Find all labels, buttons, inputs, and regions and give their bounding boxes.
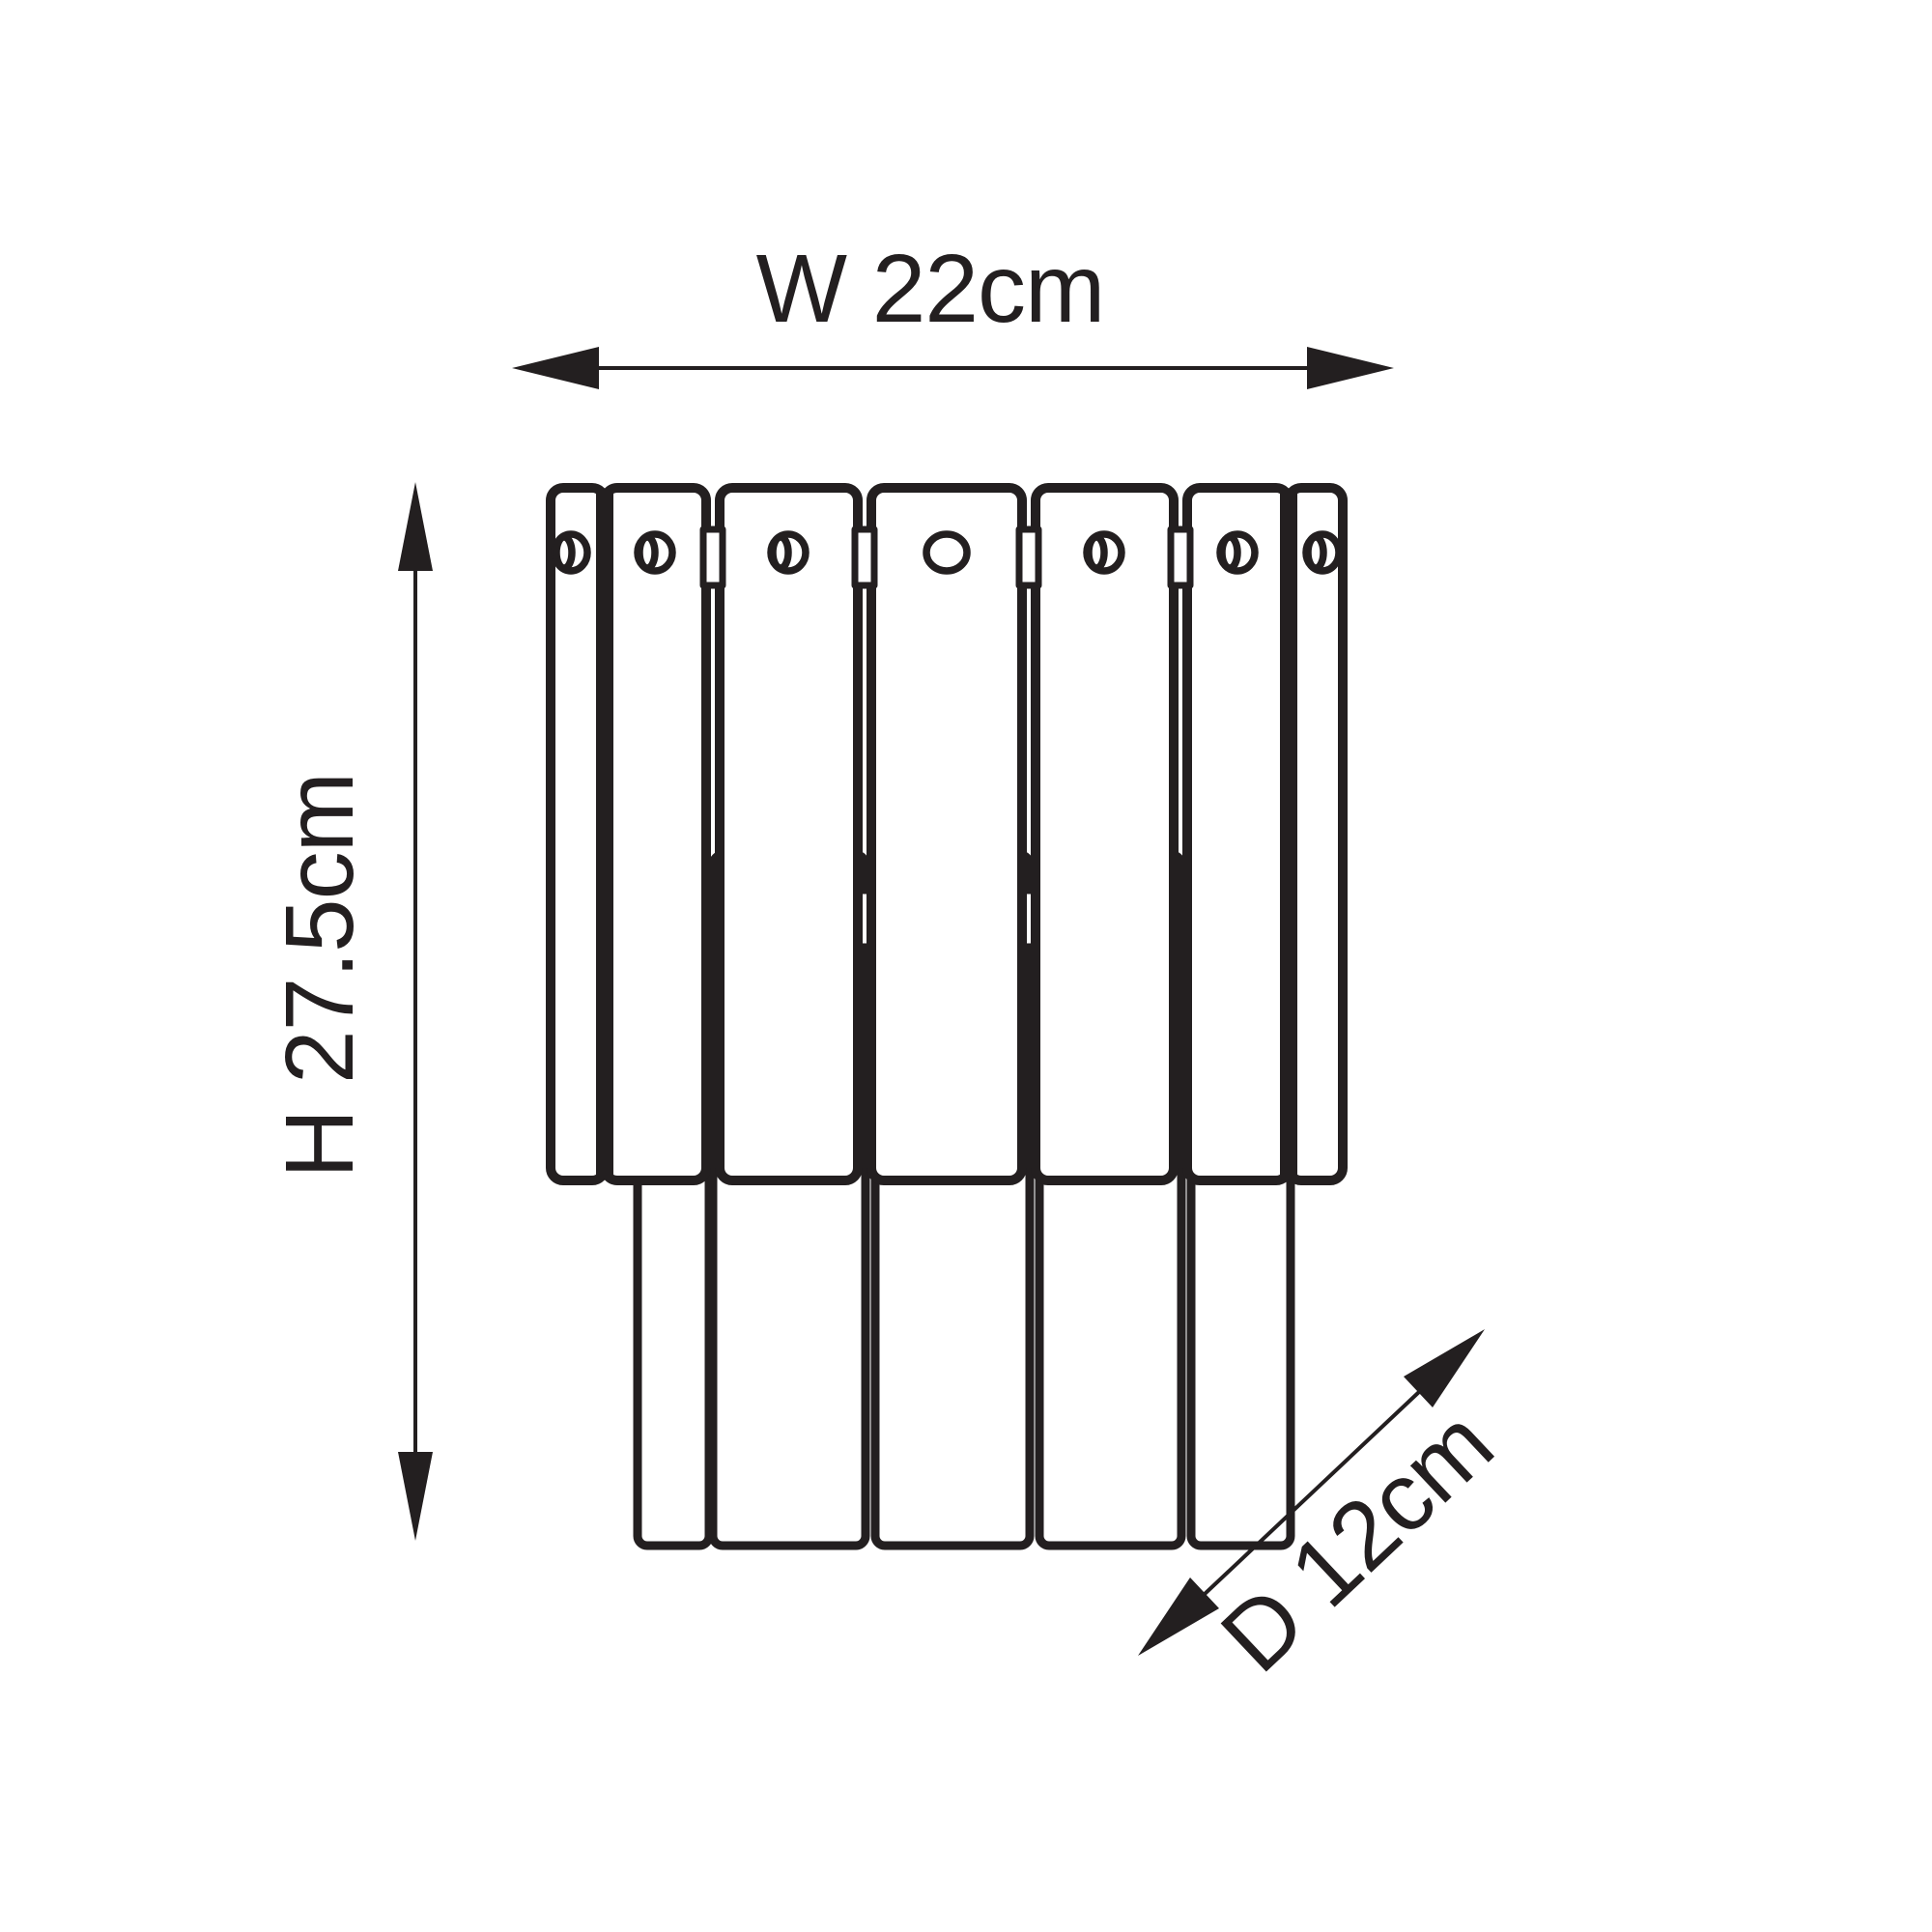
connector-tab bbox=[1019, 529, 1038, 585]
front-slat bbox=[1036, 488, 1174, 1180]
arrowhead-down bbox=[398, 1452, 433, 1541]
arrowhead-up bbox=[398, 482, 433, 571]
width-label: W 22cm bbox=[756, 235, 1105, 343]
connector-tab bbox=[703, 529, 723, 585]
side-slat-bar bbox=[596, 490, 613, 1179]
diagram-page: W 22cm H 27.5cm D 12cm bbox=[0, 0, 1932, 1932]
width-dimension: W 22cm bbox=[512, 235, 1394, 389]
technical-drawing: W 22cm H 27.5cm D 12cm bbox=[0, 0, 1932, 1932]
connector-tab bbox=[855, 529, 874, 585]
side-slat-bar bbox=[1280, 490, 1297, 1179]
front-slat-tier bbox=[551, 488, 1343, 1180]
front-slat bbox=[871, 488, 1022, 1180]
height-dimension: H 27.5cm bbox=[266, 482, 433, 1541]
height-label: H 27.5cm bbox=[266, 773, 374, 1179]
front-slat bbox=[720, 488, 858, 1180]
front-slat bbox=[605, 488, 706, 1180]
arrowhead-right bbox=[1307, 347, 1394, 389]
connector-tab bbox=[1171, 529, 1190, 585]
wall-light-fixture bbox=[551, 488, 1343, 1546]
arrowhead-left bbox=[512, 347, 599, 389]
front-slat bbox=[1187, 488, 1289, 1180]
